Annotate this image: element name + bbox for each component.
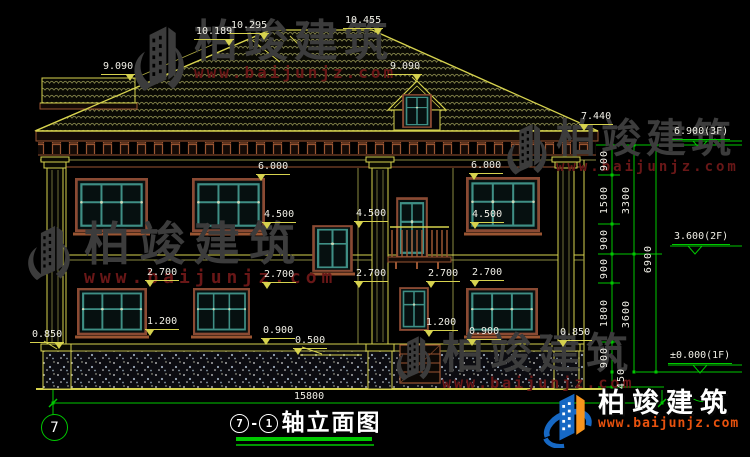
site-logo: 柏竣建筑 www.baijunjz.com — [538, 390, 739, 448]
level-floor2: 3.600(2F) — [672, 231, 730, 245]
elev-label-win1-sill-low: 0.900 — [261, 325, 295, 339]
vdim-3300: 3300 — [621, 186, 632, 214]
elev-label-wing-roof: 9.090 — [101, 61, 135, 75]
elev-label-win1-head: 2.700 — [470, 267, 504, 281]
vdim-1500: 1500 — [599, 186, 610, 214]
drawing-title: 7 - 1 轴立面图 — [230, 412, 381, 435]
vdim-450: 450 — [616, 368, 627, 389]
axis-circle-from: 7 — [230, 414, 249, 433]
cornice — [36, 131, 598, 167]
axis-circle-to: 1 — [259, 414, 278, 433]
elev-label-win2-sill: 4.500 — [354, 208, 388, 222]
grid-bubble-number: 7 — [50, 420, 58, 436]
elev-label-win2-sill: 4.500 — [262, 209, 296, 223]
elev-label-win1-head: 2.700 — [426, 268, 460, 282]
vdim-900: 900 — [599, 258, 610, 279]
elev-label-win1-head: 2.700 — [145, 267, 179, 281]
vdim-900: 900 — [599, 150, 610, 171]
elev-label-win1-sill-low: 0.900 — [467, 326, 501, 340]
elev-label-porch-slab: 0.500 — [293, 335, 327, 349]
level-floor1: ±0.000(1F) — [668, 350, 732, 364]
vdim-1800: 1800 — [599, 299, 610, 327]
base — [36, 344, 604, 389]
hdim-15800: 15800 — [294, 391, 324, 402]
cad-elevation-screenshot: 柏竣建筑 www.baijunjz.com 柏竣建筑 www.baijunjz.… — [0, 0, 750, 457]
elev-label-eave: 7.440 — [579, 111, 613, 125]
elev-label-plinth: 0.850 — [558, 327, 592, 341]
grid-bubble-7: 7 — [41, 414, 68, 441]
vdim-900: 900 — [599, 229, 610, 250]
vdim-6900: 6900 — [643, 245, 654, 273]
vdim-3600: 3600 — [621, 300, 632, 328]
elev-label-win2-sill: 4.500 — [470, 209, 504, 223]
elev-label-win2-head: 6.000 — [469, 160, 503, 174]
title-underline2 — [236, 444, 374, 446]
elev-label-dormer: 9.090 — [388, 61, 422, 75]
title-text: 轴立面图 — [281, 412, 381, 435]
level-floor3: 6.900(3F) — [672, 126, 730, 140]
elev-label-win1-sill: 1.200 — [424, 317, 458, 331]
title-separator: - — [250, 416, 258, 432]
elev-label-plinth: 0.850 — [30, 329, 64, 343]
vdim-900: 900 — [599, 347, 610, 368]
logo-url: www.baijunjz.com — [598, 416, 739, 431]
elev-label-ridge-mid: 10.295 — [229, 20, 269, 34]
elev-label-win2-head: 6.000 — [256, 161, 290, 175]
roof — [35, 30, 598, 131]
title-underline — [236, 437, 372, 441]
elev-label-win1-head: 2.700 — [262, 269, 296, 283]
logo-icon — [538, 390, 594, 448]
logo-brand: 柏竣建筑 — [598, 390, 739, 418]
elev-label-win1-sill: 1.200 — [145, 316, 179, 330]
elev-label-win1-head: 2.700 — [354, 268, 388, 282]
elev-label-ridge-top: 10.455 — [343, 15, 383, 29]
windows — [73, 178, 542, 337]
